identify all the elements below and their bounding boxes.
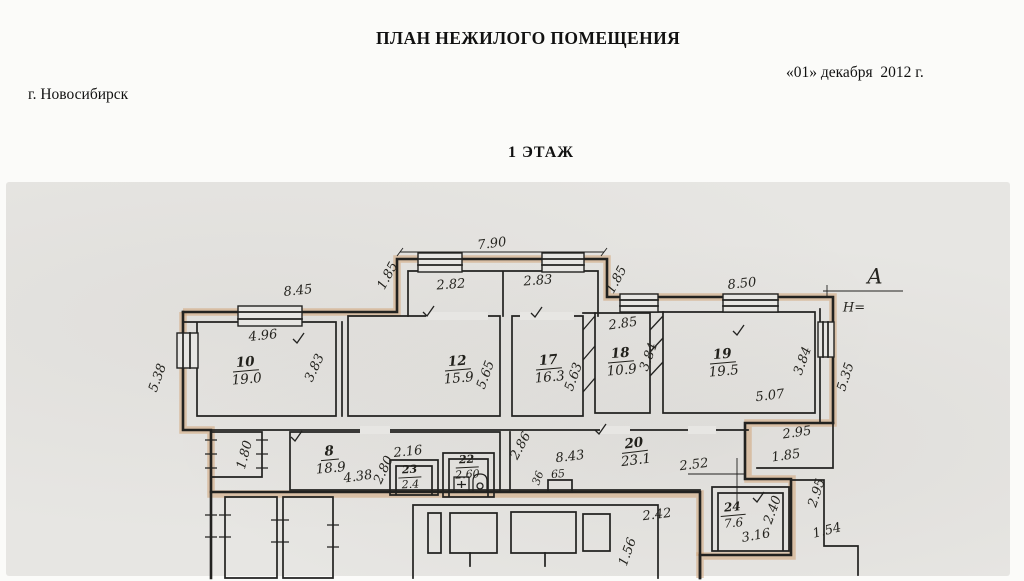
door-swing-marks <box>291 306 764 502</box>
floor-plan-drawing <box>0 0 1024 581</box>
scanned-document-page: ПЛАН НЕЖИЛОГО ПОМЕЩЕНИЯ «01» декабря 201… <box>0 0 1024 581</box>
